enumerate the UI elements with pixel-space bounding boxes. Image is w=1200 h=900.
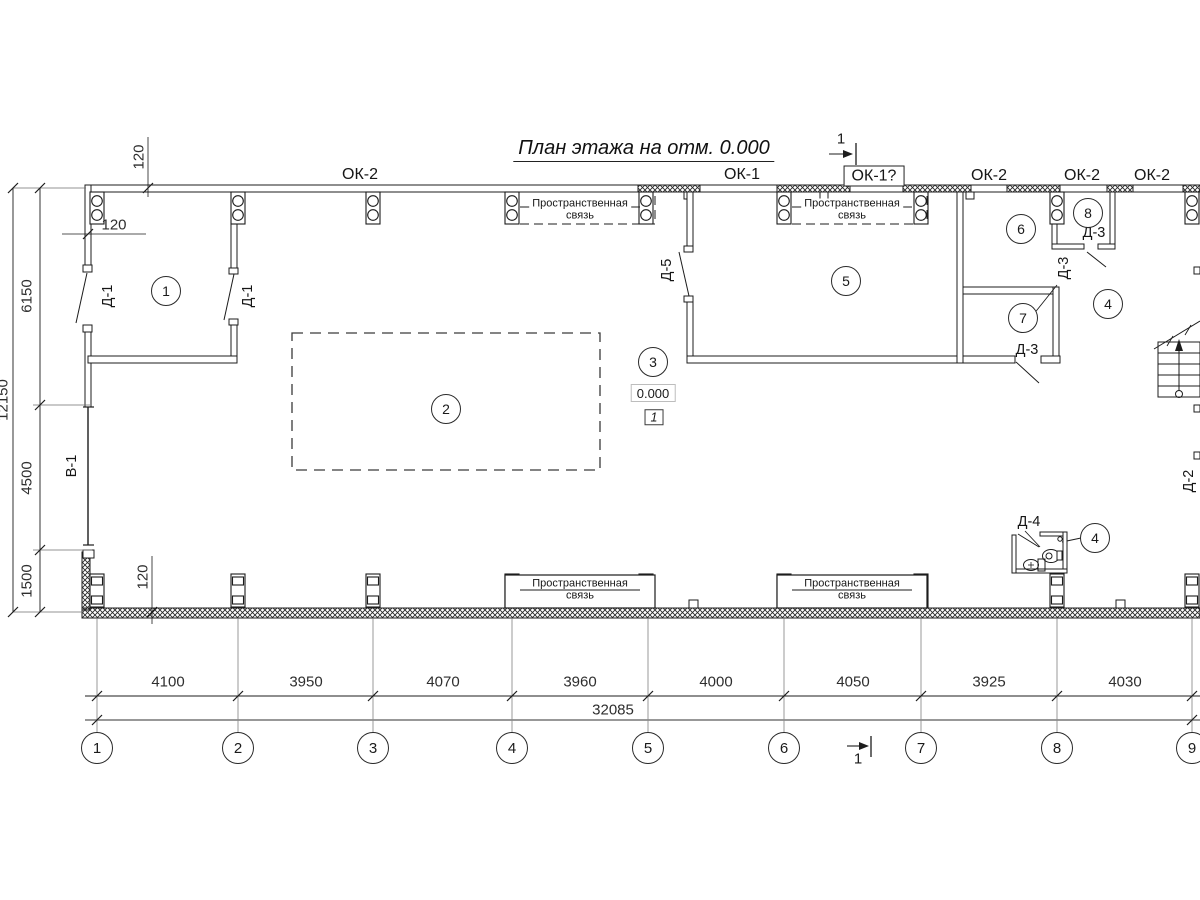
section-marks: [829, 143, 871, 757]
dim-bottom-7: 3925: [972, 675, 1005, 690]
brace-text-top2-line1: Пространственная: [801, 199, 903, 210]
window-label-ok1: ОК-1: [724, 167, 760, 183]
door-label-d3-vertical: Д-3: [1057, 257, 1072, 280]
room-circle-2: 2: [431, 394, 461, 424]
dim-bottom-5: 4000: [699, 675, 732, 690]
door-label-d2: Д-2: [1182, 470, 1197, 493]
section-mark-top: 1: [837, 132, 845, 147]
drawing-title: План этажа на отм. 0.000: [513, 138, 774, 162]
door-label-d5: Д-5: [660, 259, 675, 282]
room-circle-4a: 4: [1093, 289, 1123, 319]
elevation-mark: 0.000: [631, 384, 676, 402]
grid-axis-2: 2: [222, 732, 254, 764]
floor-plan-canvas: План этажа на отм. 0.000 ОК-2 ОК-1 ОК-1?…: [0, 0, 1200, 900]
dim-bottom-8: 4030: [1108, 675, 1141, 690]
sink-fixture: [1043, 550, 1063, 563]
wc-room: [1012, 532, 1067, 573]
grid-axis-8: 8: [1041, 732, 1073, 764]
dim-bottom-4: 3960: [563, 675, 596, 690]
room-circle-8: 8: [1073, 198, 1103, 228]
grid-axis-9: 9: [1176, 732, 1200, 764]
window-label-ok2-1: ОК-2: [342, 167, 378, 183]
room-circle-5: 5: [831, 266, 861, 296]
dim-offset-top: 120: [132, 144, 147, 169]
node-marker: 1: [645, 409, 664, 425]
door-label-d4: Д-4: [1018, 515, 1041, 530]
brace-text-bot2-line2: связь: [835, 591, 869, 602]
interior-walls: [88, 192, 1115, 547]
grid-axis-6: 6: [768, 732, 800, 764]
grid-axis-5: 5: [632, 732, 664, 764]
room-circle-3: 3: [638, 347, 668, 377]
door-label-d1-room1: Д-1: [241, 285, 256, 308]
dim-bottom-6: 4050: [836, 675, 869, 690]
brace-text-top1-line2: связь: [563, 211, 597, 222]
dim-bottom-3: 4070: [426, 675, 459, 690]
brace-boxes: [505, 192, 927, 608]
brace-text-top2-line2: связь: [835, 211, 869, 222]
dim-bottom-total: 32085: [592, 703, 634, 718]
dim-left-total: 12150: [0, 379, 11, 421]
window-label-ok2-2: ОК-2: [971, 168, 1007, 184]
room-circle-7: 7: [1008, 303, 1038, 333]
brace-text-bot1-line1: Пространственная: [529, 579, 631, 590]
gate-label-v1: В-1: [65, 455, 80, 478]
door-label-d3-room7: Д-3: [1016, 343, 1039, 358]
brace-text-top1-line1: Пространственная: [529, 199, 631, 210]
dim-bottom-2: 3950: [289, 675, 322, 690]
brace-text-bot2-line1: Пространственная: [801, 579, 903, 590]
dim-left-3: 1500: [20, 564, 35, 597]
room-circle-4b: 4: [1080, 523, 1110, 553]
brace-text-bot1-line2: связь: [563, 591, 597, 602]
section-mark-bottom: 1: [854, 752, 862, 767]
stair: [1154, 321, 1200, 398]
dim-bottom-1: 4100: [151, 675, 184, 690]
dim-offset-left: 120: [101, 218, 126, 233]
bottom-dimensions: [85, 618, 1200, 733]
window-label-ok2-4: ОК-2: [1134, 168, 1170, 184]
door-label-d1-left: Д-1: [101, 285, 116, 308]
left-dimensions: [8, 183, 92, 617]
grid-axis-7: 7: [905, 732, 937, 764]
dim-left-2: 4500: [20, 461, 35, 494]
dim-left-1: 6150: [20, 279, 35, 312]
room-circle-1: 1: [151, 276, 181, 306]
grid-axis-1: 1: [81, 732, 113, 764]
room-circle-6: 6: [1006, 214, 1036, 244]
plan-linework: [0, 0, 1200, 900]
window-label-ok1-question: ОК-1?: [844, 166, 905, 187]
grid-axis-3: 3: [357, 732, 389, 764]
grid-axis-4: 4: [496, 732, 528, 764]
window-label-ok2-3: ОК-2: [1064, 168, 1100, 184]
dim-offset-bottom: 120: [136, 564, 151, 589]
offset-dimensions: [62, 137, 157, 624]
